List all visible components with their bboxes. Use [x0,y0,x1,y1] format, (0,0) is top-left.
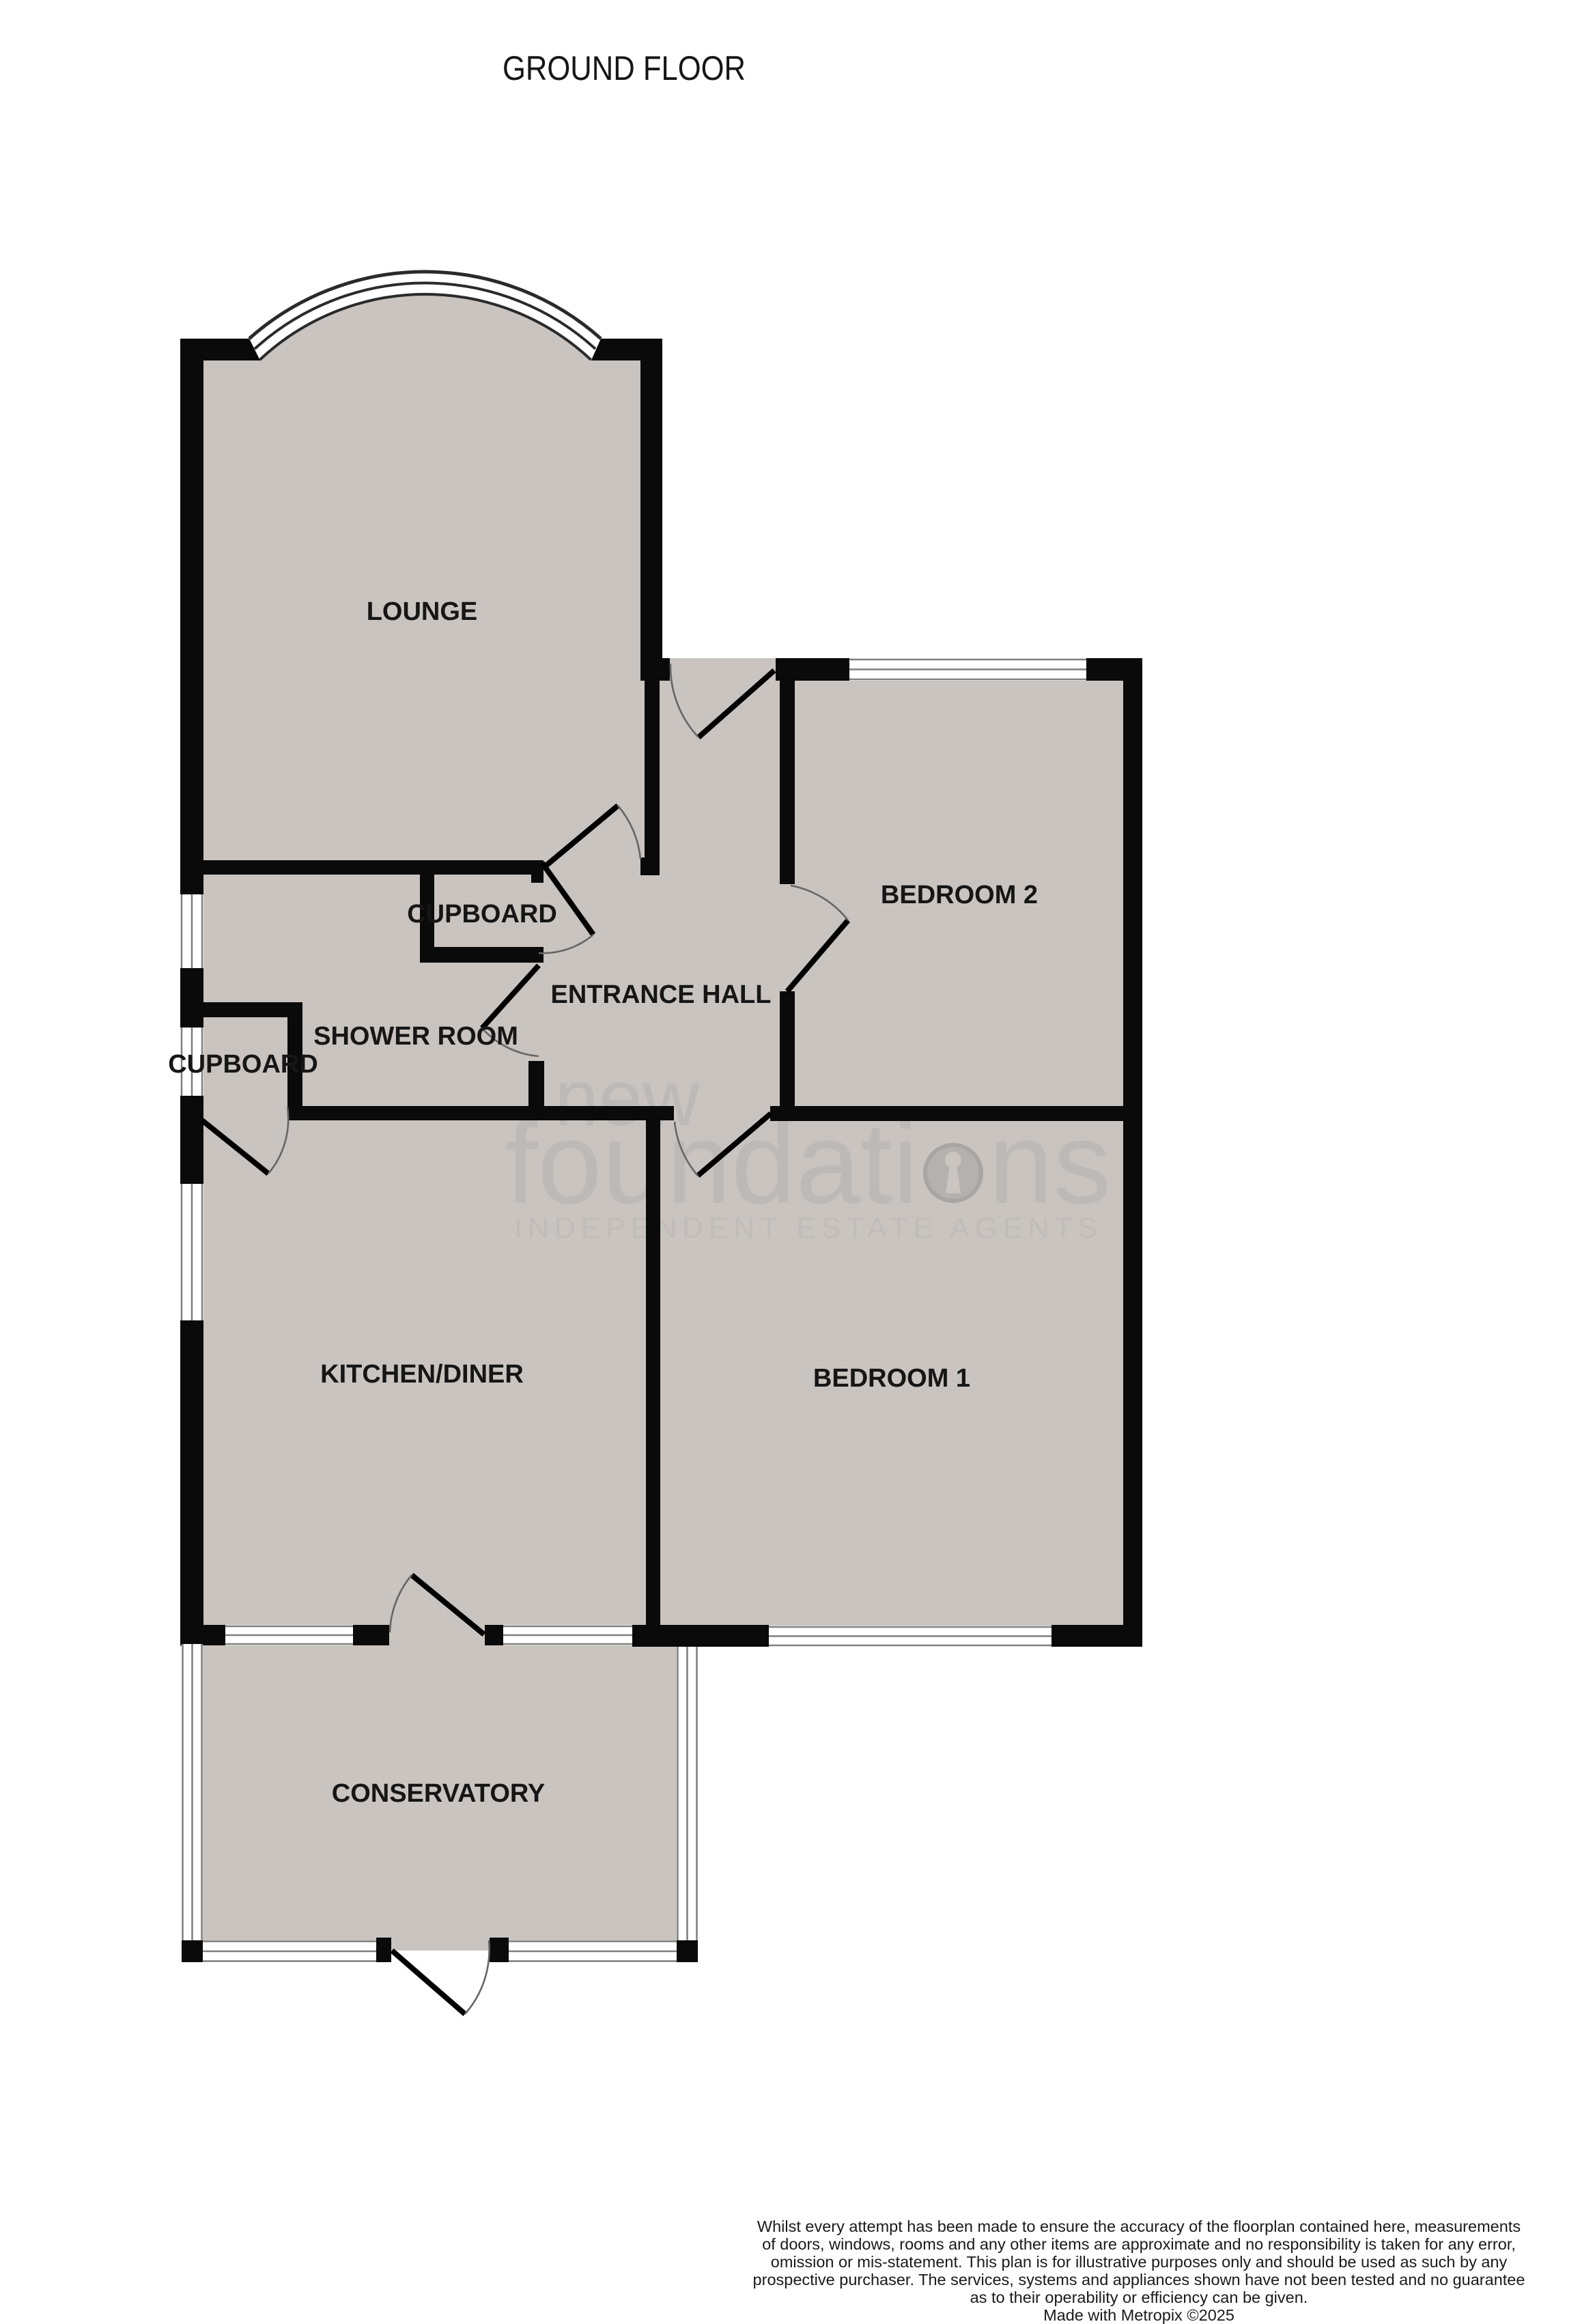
svg-text:CONSERVATORY: CONSERVATORY [332,1779,546,1808]
svg-text:INDEPENDENT ESTATE AGENTS: INDEPENDENT ESTATE AGENTS [514,1212,1103,1245]
svg-text:GROUND FLOOR: GROUND FLOOR [503,49,746,87]
svg-text:omission or mis-statement. Thi: omission or mis-statement. This plan is … [771,2253,1508,2271]
svg-text:as to their operability or eff: as to their operability or efficiency ca… [970,2288,1308,2306]
svg-text:BEDROOM 1: BEDROOM 1 [813,1364,970,1393]
svg-text:Made with Metropix ©2025: Made with Metropix ©2025 [1043,2306,1234,2324]
svg-text:CUPBOARD: CUPBOARD [168,1050,318,1079]
svg-text:prospective purchaser. The ser: prospective purchaser. The services, sys… [753,2271,1525,2288]
svg-text:BEDROOM 2: BEDROOM 2 [881,881,1038,909]
svg-text:KITCHEN/DINER: KITCHEN/DINER [320,1360,524,1389]
svg-text:of doors, windows, rooms and a: of doors, windows, rooms and any other i… [762,2235,1516,2253]
svg-text:CUPBOARD: CUPBOARD [407,900,557,929]
svg-text:LOUNGE: LOUNGE [367,597,478,626]
svg-text:SHOWER ROOM: SHOWER ROOM [313,1022,518,1051]
svg-text:ENTRANCE HALL: ENTRANCE HALL [551,980,772,1009]
svg-text:Whilst every attempt has been: Whilst every attempt has been made to en… [757,2217,1521,2235]
